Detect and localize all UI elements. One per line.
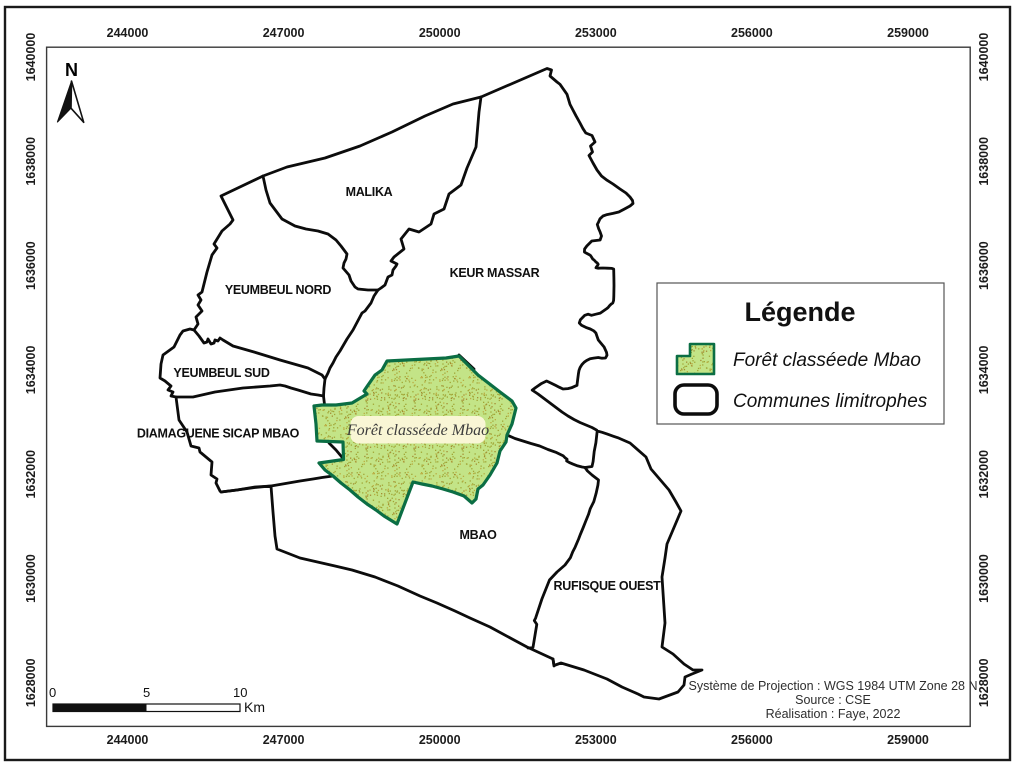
svg-text:5: 5 [143, 685, 150, 700]
svg-text:1628000: 1628000 [977, 658, 991, 707]
svg-text:256000: 256000 [731, 733, 773, 747]
svg-text:Source : CSE: Source : CSE [795, 693, 871, 707]
svg-text:YEUMBEUL NORD: YEUMBEUL NORD [225, 283, 332, 297]
svg-text:1640000: 1640000 [24, 33, 38, 82]
svg-text:1632000: 1632000 [977, 450, 991, 499]
svg-text:1634000: 1634000 [24, 346, 38, 395]
svg-text:KEUR MASSAR: KEUR MASSAR [450, 266, 540, 280]
svg-text:253000: 253000 [575, 733, 617, 747]
svg-text:Forêt classéede Mbao: Forêt classéede Mbao [346, 422, 489, 439]
svg-text:Réalisation : Faye, 2022: Réalisation : Faye, 2022 [766, 707, 901, 721]
svg-text:250000: 250000 [419, 733, 461, 747]
svg-text:259000: 259000 [887, 733, 929, 747]
svg-text:MBAO: MBAO [460, 528, 498, 542]
svg-text:247000: 247000 [263, 26, 305, 40]
svg-text:RUFISQUE OUEST: RUFISQUE OUEST [554, 579, 662, 593]
svg-text:1630000: 1630000 [24, 554, 38, 603]
svg-text:244000: 244000 [107, 26, 149, 40]
svg-text:1638000: 1638000 [24, 137, 38, 186]
svg-text:1640000: 1640000 [977, 33, 991, 82]
svg-text:10: 10 [233, 685, 247, 700]
svg-text:MALIKA: MALIKA [346, 185, 393, 199]
svg-text:1632000: 1632000 [24, 450, 38, 499]
svg-text:Forêt classéede Mbao: Forêt classéede Mbao [733, 350, 921, 371]
svg-text:1630000: 1630000 [977, 554, 991, 603]
svg-text:253000: 253000 [575, 26, 617, 40]
svg-text:1636000: 1636000 [977, 241, 991, 290]
svg-text:N: N [65, 60, 78, 80]
svg-text:259000: 259000 [887, 26, 929, 40]
svg-text:0: 0 [49, 685, 56, 700]
svg-text:1638000: 1638000 [977, 137, 991, 186]
svg-text:1628000: 1628000 [24, 658, 38, 707]
svg-text:Légende: Légende [744, 297, 855, 327]
svg-text:Système de Projection : WGS 19: Système de Projection : WGS 1984 UTM Zon… [688, 679, 977, 693]
svg-text:Communes limitrophes: Communes limitrophes [733, 391, 928, 412]
svg-text:244000: 244000 [107, 733, 149, 747]
svg-text:256000: 256000 [731, 26, 773, 40]
svg-text:YEUMBEUL SUD: YEUMBEUL SUD [173, 366, 269, 380]
svg-text:1636000: 1636000 [24, 241, 38, 290]
svg-text:250000: 250000 [419, 26, 461, 40]
svg-text:247000: 247000 [263, 733, 305, 747]
svg-text:Km: Km [244, 699, 265, 715]
svg-text:1634000: 1634000 [977, 346, 991, 395]
svg-text:DIAMAGUENE SICAP MBAO: DIAMAGUENE SICAP MBAO [137, 427, 300, 441]
